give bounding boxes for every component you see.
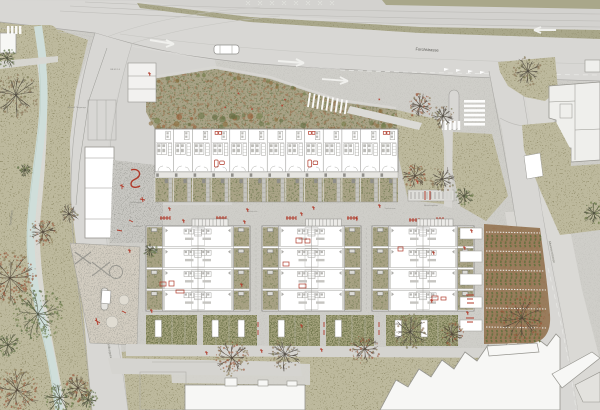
svg-text:Spielstrasse: Spielstrasse [247, 210, 259, 213]
svg-text:Quartierplatz: Quartierplatz [130, 201, 143, 204]
svg-text:Besucherplätze: Besucherplätze [424, 204, 439, 207]
svg-text:BB 09 1.6: BB 09 1.6 [110, 69, 120, 71]
svg-text:Spielstrasse: Spielstrasse [385, 207, 397, 210]
svg-text:Sandplatz: Sandplatz [133, 225, 142, 228]
svg-text:Schnell Tiefgarage: Schnell Tiefgarage [68, 106, 87, 109]
